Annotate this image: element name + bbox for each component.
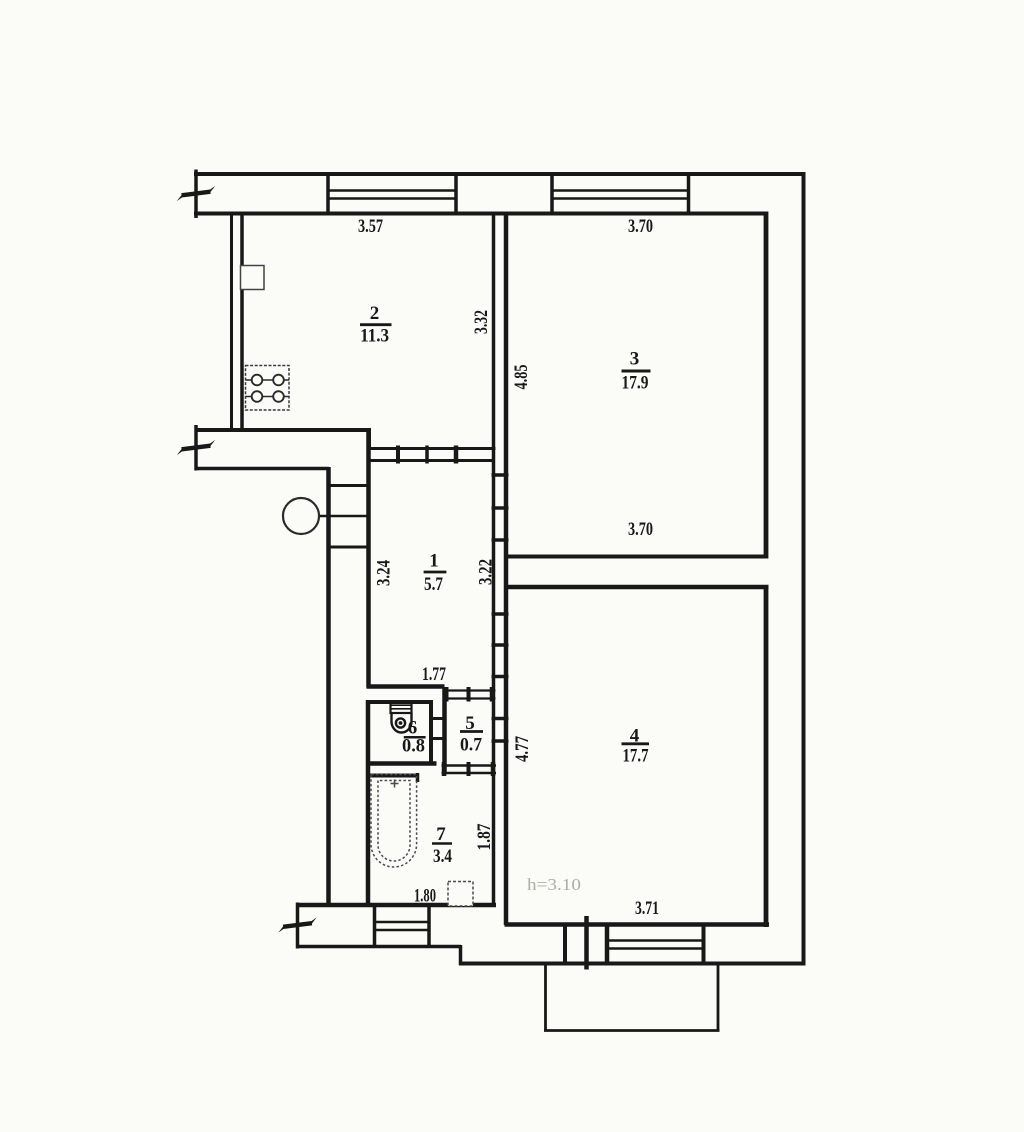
svg-text:1.77: 1.77: [422, 664, 446, 685]
svg-text:h=3.10: h=3.10: [527, 875, 581, 894]
svg-text:17.7: 17.7: [623, 746, 649, 767]
svg-text:3.57: 3.57: [358, 216, 383, 237]
svg-text:11.3: 11.3: [360, 326, 389, 347]
svg-text:1.80: 1.80: [414, 886, 436, 907]
svg-text:3: 3: [630, 349, 640, 370]
svg-text:3.22: 3.22: [476, 559, 497, 585]
svg-text:0.7: 0.7: [460, 735, 482, 756]
svg-text:1: 1: [429, 551, 439, 572]
svg-text:3.24: 3.24: [374, 560, 395, 586]
svg-text:3.70: 3.70: [628, 216, 653, 237]
svg-text:3.70: 3.70: [628, 519, 653, 540]
svg-text:3.4: 3.4: [433, 846, 452, 867]
svg-text:17.9: 17.9: [622, 373, 649, 394]
svg-text:0.8: 0.8: [402, 736, 425, 757]
svg-text:7: 7: [436, 824, 446, 845]
svg-text:3.71: 3.71: [635, 898, 659, 919]
svg-text:3.32: 3.32: [471, 310, 492, 334]
svg-text:4.77: 4.77: [512, 736, 533, 762]
svg-text:2: 2: [370, 303, 380, 324]
svg-text:1.87: 1.87: [474, 823, 495, 850]
svg-text:5.7: 5.7: [424, 574, 443, 595]
svg-text:4.85: 4.85: [511, 365, 532, 390]
